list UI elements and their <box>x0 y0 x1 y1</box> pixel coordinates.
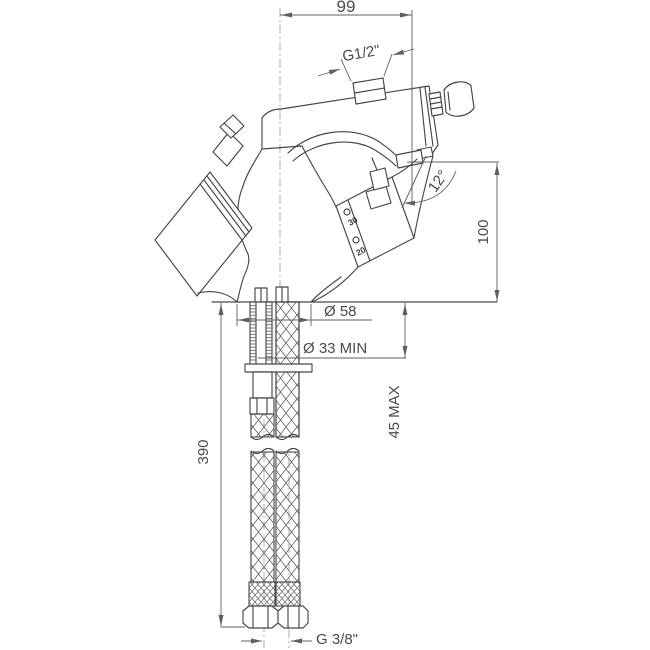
hex-nut-right <box>278 606 308 628</box>
mounting-flange <box>245 364 312 372</box>
dim-hose-length: 390 <box>195 303 245 627</box>
dim-deck-thickness: 45 MAX <box>386 303 405 439</box>
supply-assembly <box>243 302 312 628</box>
hose-left-lower <box>251 452 274 582</box>
left-handle-knob <box>213 132 243 166</box>
dim-100-label: 100 <box>475 219 492 244</box>
dim-99-label: 99 <box>337 0 356 16</box>
faucet-technical-drawing: 30 20 <box>0 0 650 650</box>
dim-top-thread: G1/2" <box>318 42 414 81</box>
dim-g38-label: G 3/8" <box>316 631 358 648</box>
hose-right-lower <box>276 452 299 582</box>
dim-45max-label: 45 MAX <box>386 385 403 438</box>
faucet-body: 30 20 <box>155 78 497 302</box>
diverter-knob <box>429 82 474 116</box>
collar-left <box>249 582 276 606</box>
dim-spout-reach: 99 <box>280 0 412 202</box>
dim-33-label: Ø 33 MIN <box>303 340 367 357</box>
base-inlets <box>255 287 288 302</box>
collar-right <box>275 582 300 606</box>
dim-outlet-height: 100 <box>475 163 497 302</box>
right-handle: 30 20 <box>311 158 414 302</box>
dim-390-label: 390 <box>195 439 212 464</box>
hex-nut-left <box>243 606 278 628</box>
dim-hose-thread: G 3/8" <box>241 631 358 648</box>
top-thread-boss <box>353 78 386 104</box>
left-handle <box>155 115 252 302</box>
dim-g12-label: G1/2" <box>341 42 381 65</box>
mounting-nut <box>250 398 274 414</box>
dim-58-label: Ø 58 <box>324 303 357 320</box>
faucet-technical-drawing-page: 30 20 <box>0 0 650 650</box>
